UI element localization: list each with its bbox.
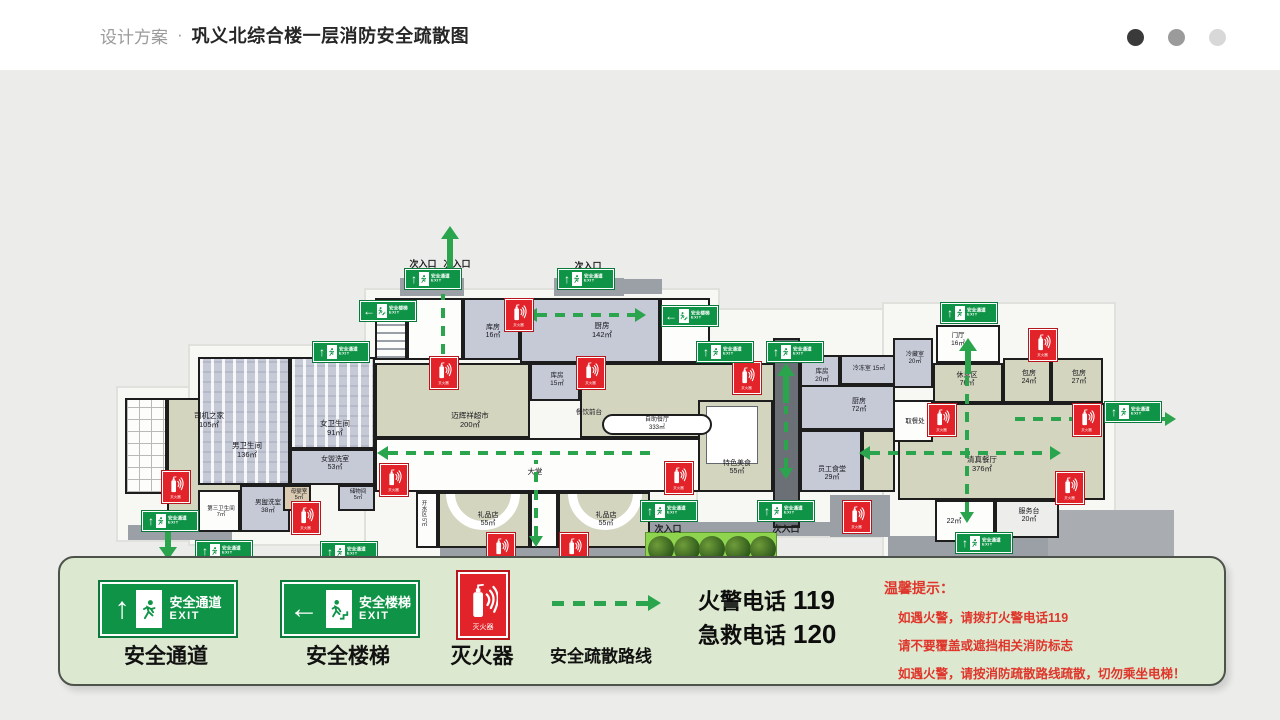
tips-title: 温馨提示： bbox=[884, 578, 1236, 598]
exit-text: EXIT bbox=[359, 610, 411, 623]
exit-passage-sign: ↑安全通道EXIT bbox=[558, 269, 614, 289]
direction-arrow-icon bbox=[783, 374, 789, 403]
room: 第三卫生间7㎡ bbox=[198, 490, 240, 532]
entrance-label: 次入口 bbox=[772, 522, 799, 535]
extinguisher-sign: 灭火器 bbox=[505, 299, 533, 331]
fire-extinguisher-icon bbox=[468, 580, 498, 624]
evacuation-route bbox=[537, 313, 635, 317]
room: 女盥洗室53㎡ bbox=[290, 449, 375, 485]
room-label: 清真餐厅376㎡ bbox=[967, 456, 997, 474]
direction-arrow-icon bbox=[447, 237, 453, 270]
legend-panel: ↑ 安全通道EXIT 安全通道 ← 安全楼梯EXIT 安全楼梯 灭火器 灭火器 … bbox=[58, 556, 1226, 686]
legend-exit-stairs-sign: ← 安全楼梯EXIT bbox=[282, 582, 418, 636]
route-arrowhead-icon bbox=[1165, 412, 1176, 426]
route-arrowhead-icon bbox=[1050, 446, 1061, 460]
extinguisher-sign: 灭火器 bbox=[577, 357, 605, 389]
extinguisher-sign: 灭火器 bbox=[430, 357, 458, 389]
exit-passage-sign: ↑安全通道EXIT bbox=[758, 501, 814, 521]
room-label: 取餐处 bbox=[905, 418, 925, 426]
brand-label: 设计方案 bbox=[100, 23, 168, 48]
separator-dot: · bbox=[177, 25, 183, 45]
room-label: 迈辉祥超市200㎡ bbox=[451, 412, 489, 430]
route-arrowhead-icon bbox=[635, 308, 646, 322]
slide-dot-1[interactable] bbox=[1127, 29, 1144, 46]
legend-extinguisher-sign: 灭火器 bbox=[458, 572, 508, 638]
extinguisher-sign: 灭火器 bbox=[1073, 404, 1101, 436]
fire-phone: 火警电话119 bbox=[698, 584, 836, 618]
extinguisher-sign: 灭火器 bbox=[1056, 472, 1084, 504]
room-label: 母婴室5㎡ bbox=[291, 489, 308, 502]
room-label: 特色美食55㎡ bbox=[723, 460, 751, 477]
legend-exit-passage-sign: ↑ 安全通道EXIT bbox=[100, 582, 236, 636]
exit-stairs-sign: ←安全楼梯EXIT bbox=[662, 306, 718, 326]
room-label: 第三卫生间7㎡ bbox=[207, 506, 235, 519]
room: 礼品店55㎡ bbox=[438, 492, 530, 548]
room-label: 冷冻室 15㎡ bbox=[853, 366, 885, 373]
room-label: 库房20㎡ bbox=[815, 368, 829, 383]
room: 包房27㎡ bbox=[1051, 358, 1103, 403]
legend-stairs-label: 安全楼梯 bbox=[282, 640, 414, 670]
room-label: 开水区 5㎡ bbox=[420, 500, 426, 527]
room bbox=[862, 430, 895, 492]
room: 库房15㎡ bbox=[530, 363, 580, 401]
extinguisher-sign: 灭火器 bbox=[843, 501, 871, 533]
route-arrowhead-icon bbox=[960, 512, 974, 523]
warm-tips: 温馨提示： 如遇火警，请拨打火警电话119 请不要覆盖或遮挡相关消防标志 如遇火… bbox=[884, 578, 1236, 682]
passage-text: 安全通道 bbox=[169, 595, 221, 611]
room: 员工食堂29㎡ bbox=[800, 430, 862, 492]
extinguisher-sign: 灭火器 bbox=[733, 362, 761, 394]
plan-label: 餐饮前台 bbox=[576, 406, 602, 416]
room-label: 冷藏室20㎡ bbox=[906, 352, 924, 366]
route-arrowhead-icon bbox=[648, 595, 661, 611]
room-label: 礼品店55㎡ bbox=[478, 512, 499, 529]
room: 包房24㎡ bbox=[1003, 358, 1051, 403]
extinguisher-sign: 灭火器 bbox=[380, 464, 408, 496]
route-arrowhead-icon bbox=[779, 468, 793, 479]
room-label: 女盥洗室53㎡ bbox=[321, 456, 349, 473]
route-arrowhead-icon bbox=[529, 536, 543, 547]
room-label: 司机之家105㎡ bbox=[194, 412, 224, 430]
exit-passage-sign: ↑安全通道EXIT bbox=[405, 269, 461, 289]
evacuation-route-dash bbox=[552, 601, 648, 606]
exit-passage-sign: ↑安全通道EXIT bbox=[313, 342, 369, 362]
tip-line: 如遇火警，请按消防疏散路线疏散，切勿乘坐电梯！ bbox=[884, 663, 1236, 682]
evacuation-route bbox=[534, 460, 538, 536]
legend-extinguisher-label: 灭火器 bbox=[440, 640, 524, 670]
room: 特色美食55㎡ bbox=[698, 400, 773, 492]
room: 储物间5㎡ bbox=[338, 485, 375, 511]
exit-stairs-sign: ←安全楼梯EXIT bbox=[360, 301, 416, 321]
exit-passage-sign: ↑安全通道EXIT bbox=[956, 533, 1012, 553]
entrance-platform bbox=[610, 279, 662, 294]
legend-route-label: 安全疏散路线 bbox=[538, 642, 664, 667]
room-label: 女卫生间91㎡ bbox=[320, 420, 350, 438]
extinguisher-sign: 灭火器 bbox=[162, 471, 190, 503]
running-person-icon bbox=[136, 590, 162, 628]
emergency-phones: 火警电话119 急救电话120 bbox=[698, 584, 836, 652]
room-label: 库房15㎡ bbox=[550, 372, 564, 387]
extinguisher-sign: 灭火器 bbox=[928, 404, 956, 436]
room-label: 储物间5㎡ bbox=[350, 489, 367, 502]
top-bar: 设计方案 · 巩义北综合楼一层消防安全疏散图 bbox=[0, 0, 1280, 70]
entrance-label: 次入口 bbox=[654, 522, 681, 535]
extinguisher-sign: 灭火器 bbox=[1029, 329, 1057, 361]
legend-passage-label: 安全通道 bbox=[100, 640, 232, 670]
stairs-text: 安全楼梯 bbox=[359, 595, 411, 611]
breadcrumb: 设计方案 · 巩义北综合楼一层消防安全疏散图 bbox=[100, 0, 469, 70]
room: 取餐处 bbox=[893, 400, 933, 442]
evacuation-route bbox=[784, 406, 788, 468]
exit-text: EXIT bbox=[169, 610, 221, 623]
buffet-counter: 自助餐厅333㎡ bbox=[602, 414, 712, 435]
room: 女卫生间91㎡ bbox=[290, 357, 375, 449]
exit-passage-sign: ↑安全通道EXIT bbox=[767, 342, 823, 362]
extinguisher-small-text: 灭火器 bbox=[473, 624, 494, 631]
tip-line: 请不要覆盖或遮挡相关消防标志 bbox=[884, 635, 1236, 654]
slide-dot-2[interactable] bbox=[1168, 29, 1185, 46]
route-arrowhead-icon bbox=[377, 446, 388, 460]
evacuation-route bbox=[441, 294, 445, 354]
page-title: 巩义北综合楼一层消防安全疏散图 bbox=[192, 22, 470, 48]
room: 冷冻室 15㎡ bbox=[840, 355, 895, 385]
room bbox=[125, 398, 167, 494]
person-stairs-icon bbox=[326, 590, 352, 628]
extinguisher-sign: 灭火器 bbox=[665, 462, 693, 494]
evacuation-route bbox=[388, 451, 658, 455]
route-arrowhead-icon bbox=[859, 446, 870, 460]
room: 开水区 5㎡ bbox=[416, 492, 438, 548]
tip-line: 如遇火警，请拨打火警电话119 bbox=[884, 607, 1236, 626]
room-label: 礼品店55㎡ bbox=[596, 512, 617, 529]
room: 冷藏室20㎡ bbox=[893, 338, 933, 388]
room-label: 厨房72㎡ bbox=[852, 398, 867, 415]
room-label: 员工食堂29㎡ bbox=[818, 466, 846, 483]
room-label: 厨房142㎡ bbox=[592, 322, 612, 340]
room-label: 服务台20㎡ bbox=[1019, 508, 1040, 525]
exit-passage-sign: ↑安全通道EXIT bbox=[697, 342, 753, 362]
room-label: 男卫生间136㎡ bbox=[232, 442, 262, 460]
exit-passage-sign: ↑安全通道EXIT bbox=[941, 303, 997, 323]
slide-dot-3[interactable] bbox=[1209, 29, 1226, 46]
exit-passage-sign: ↑安全通道EXIT bbox=[641, 501, 697, 521]
room-label: 包房24㎡ bbox=[1022, 370, 1037, 387]
evacuation-route bbox=[965, 372, 969, 512]
up-arrow-icon: ↑ bbox=[114, 594, 129, 624]
evacuation-route bbox=[870, 451, 1050, 455]
ambulance-phone: 急救电话120 bbox=[698, 618, 836, 652]
room: 厨房72㎡ bbox=[800, 385, 895, 430]
room-label: 男盥洗室38㎡ bbox=[255, 499, 281, 514]
room-label: 包房27㎡ bbox=[1072, 370, 1087, 387]
extinguisher-sign: 灭火器 bbox=[292, 502, 320, 534]
exit-passage-sign: ↑安全通道EXIT bbox=[1105, 402, 1161, 422]
exit-passage-sign: ↑安全通道EXIT bbox=[142, 511, 198, 531]
left-arrow-icon: ← bbox=[289, 594, 319, 624]
slide-dots bbox=[1127, 29, 1226, 46]
room-label: 库房16㎡ bbox=[486, 324, 501, 341]
direction-arrow-icon bbox=[965, 349, 971, 374]
